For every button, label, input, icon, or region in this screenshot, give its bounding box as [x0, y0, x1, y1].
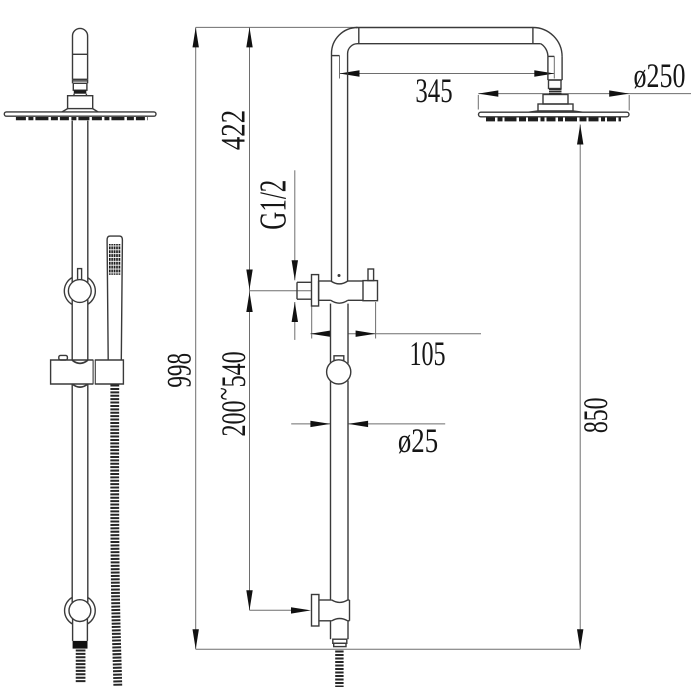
svg-text:G1/2: G1/2 — [252, 180, 294, 230]
svg-text:105: 105 — [409, 335, 445, 373]
svg-text:998: 998 — [161, 353, 199, 388]
svg-text:850: 850 — [577, 398, 615, 434]
svg-text:422: 422 — [214, 110, 252, 150]
svg-text:ø250: ø250 — [634, 57, 686, 95]
svg-text:345: 345 — [415, 72, 452, 110]
svg-text:ø25: ø25 — [398, 422, 438, 460]
